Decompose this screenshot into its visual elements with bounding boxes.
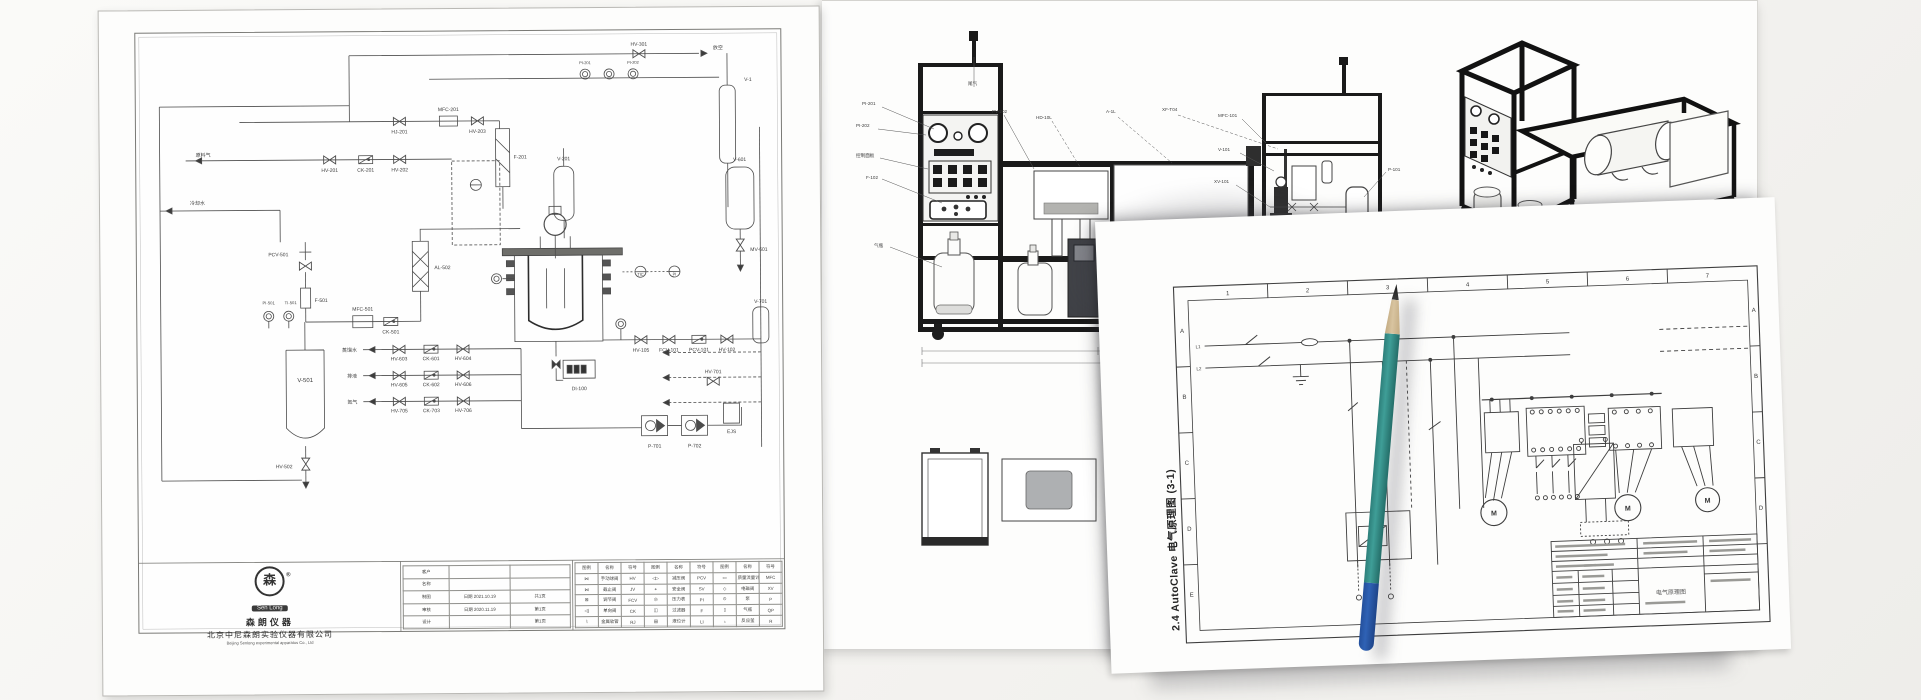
- drawing-label: 2: [1306, 288, 1310, 294]
- legend-header-cell: 符号: [759, 561, 782, 572]
- drawing-label: AL-502: [434, 265, 450, 271]
- drawing-label: HV-203: [469, 129, 486, 135]
- drawing-label: PI-201: [579, 60, 592, 65]
- drawing-label: FCV-101: [659, 347, 679, 353]
- drawing-label: HD-10L: [1036, 115, 1052, 120]
- drawing-label: V-601: [733, 157, 746, 163]
- drawing-label: HV-603: [391, 356, 408, 362]
- electrical-labels: 1234567ABCDEABCDL1L2MMM电气原理图: [1178, 272, 1766, 614]
- electrical-sheet: 1234567ABCDEABCDL1L2MMM电气原理图 2.4 AutoCla…: [1095, 197, 1791, 674]
- photo-canvas: HV-301放空V-1PI-201PI-202原料气HJ-201MFC-201H…: [0, 0, 1921, 700]
- drawing-label: 4: [1466, 282, 1470, 288]
- title-info-cell: [510, 565, 570, 578]
- title-info-cell: 共1页: [510, 590, 570, 603]
- title-info-table: 客户名称制图日期 2021.10.19共1页审核日期 2020.11.19第1页…: [402, 564, 570, 629]
- drawing-label: HV-102: [719, 347, 736, 353]
- drawing-label: 尾气: [968, 80, 978, 87]
- drawing-label: DI-100: [572, 386, 587, 392]
- title-info-cell: [449, 565, 509, 578]
- drawing-label: M: [1625, 506, 1631, 513]
- title-info-cell: [449, 578, 509, 591]
- drawing-label: 排液: [347, 373, 357, 380]
- drawing-label: F-102: [866, 175, 878, 180]
- drawing-label: 1: [1226, 291, 1230, 297]
- drawing-label: PCV-501: [268, 252, 288, 258]
- brand-cn: 森朗仪器: [143, 614, 397, 629]
- legend-cell: FCV: [621, 595, 644, 606]
- title-info-cell: 客户: [403, 566, 449, 579]
- electrical-drawing: 1234567ABCDEABCDL1L2MMM电气原理图: [1095, 197, 1791, 674]
- title-info-cell: 第1页: [510, 603, 570, 616]
- drawing-label: HV-202: [391, 167, 408, 173]
- legend-cell: ⋈: [575, 573, 598, 584]
- legend-cell: PCV: [690, 573, 713, 584]
- legend-cell: ◇: [713, 583, 736, 594]
- legend-cell: 反应釜: [736, 616, 759, 627]
- pid-sheet: HV-301放空V-1PI-201PI-202原料气HJ-201MFC-201H…: [98, 5, 825, 696]
- title-info-cell: 设计: [403, 616, 449, 629]
- drawing-label: A-1L: [1106, 109, 1116, 114]
- legend-cell: XV: [759, 583, 782, 594]
- legend-cell: ▤: [644, 616, 667, 627]
- drawing-label: P-702: [688, 443, 702, 449]
- drawing-label: HV-301: [631, 42, 648, 48]
- legend-cell: ▭: [713, 572, 736, 583]
- legend-cell: 金属软管: [598, 617, 621, 628]
- drawing-label: A: [1752, 308, 1756, 314]
- drawing-label: 5: [1546, 279, 1550, 285]
- drawing-label: HJ-201: [391, 129, 407, 135]
- legend-table: 图例名称符号图例名称符号图例名称符号⋈手动球阀HV◁▷减压阀PCV▭质量流量计M…: [574, 561, 782, 628]
- legend-cell: ♁: [713, 616, 736, 627]
- drawing-label: HV-201: [321, 168, 338, 174]
- legend-cell: P: [759, 594, 782, 605]
- drawing-label: 原料气: [196, 152, 211, 159]
- legend-cell: 泵: [736, 594, 759, 605]
- senlong-logo-icon: 森®: [254, 566, 284, 596]
- drawing-label: 控制面板: [856, 152, 875, 159]
- legend-cell: RJ: [621, 616, 644, 627]
- drawing-label: PCV-101: [689, 347, 709, 353]
- drawing-label: CK-703: [423, 408, 440, 414]
- drawing-label: V-1: [744, 77, 752, 83]
- drawing-label: HV-605: [391, 382, 408, 388]
- drawing-label: MFC-201: [438, 107, 459, 113]
- drawing-label: L1: [1196, 344, 1202, 349]
- drawing-label: V-701: [754, 299, 767, 305]
- drawing-label: 氮气: [347, 399, 357, 406]
- drawing-label: CK-201: [357, 168, 374, 174]
- drawing-label: HV-706: [455, 408, 472, 414]
- drawing-label: MV-601: [750, 247, 767, 253]
- drawing-label: PI-501: [262, 300, 275, 305]
- legend-cell: LI: [690, 616, 713, 627]
- titleblock-text-bars: [1555, 538, 1753, 613]
- drawing-label: 冷却水: [190, 200, 205, 207]
- drawing-label: B: [1754, 374, 1758, 380]
- legend-header-cell: 名称: [598, 562, 621, 573]
- drawing-label: MFC-501: [352, 307, 373, 313]
- drawing-label: CK-602: [423, 382, 440, 388]
- legend-header-cell: 名称: [736, 561, 759, 572]
- drawing-label: F-501: [315, 298, 328, 304]
- legend-cell: SV: [690, 583, 713, 594]
- legend-header-cell: 名称: [667, 562, 690, 573]
- drawing-label: XF-T04: [1162, 107, 1178, 112]
- drawing-label: C: [1756, 440, 1761, 446]
- title-block-info: 客户名称制图日期 2021.10.19共1页审核日期 2020.11.19第1页…: [402, 564, 570, 629]
- title-info-cell: [450, 616, 510, 629]
- drawing-label: 6: [1626, 276, 1630, 282]
- drawing-label: L2: [1196, 366, 1202, 371]
- drawing-label: HV-502: [276, 464, 293, 470]
- legend-cell: F: [690, 605, 713, 616]
- legend-cell: 压力表: [667, 594, 690, 605]
- drawing-label: C: [1185, 461, 1190, 467]
- legend-cell: CK: [621, 606, 644, 617]
- legend-cell: MFC: [759, 572, 782, 583]
- drawing-label: TIC: [637, 272, 644, 277]
- legend-cell: R: [759, 615, 782, 626]
- legend-cell: ⌖: [644, 584, 667, 595]
- drawing-label: CK-601: [423, 356, 440, 362]
- legend-cell: 手动球阀: [598, 573, 621, 584]
- drawing-label: F-201: [514, 155, 527, 161]
- drawing-label: B: [1182, 395, 1186, 401]
- drawing-label: PI-202: [856, 123, 870, 128]
- title-info-cell: [510, 577, 570, 590]
- legend-cell: 单向阀: [598, 606, 621, 617]
- drawing-label: PV-202: [992, 109, 1008, 114]
- drawing-label: PI: [673, 271, 677, 276]
- drawing-label: E: [1190, 593, 1194, 599]
- drawing-label: PI-202: [627, 60, 640, 65]
- title-info-cell: 名称: [403, 578, 449, 591]
- drawing-label: 气瓶: [874, 242, 884, 249]
- drawing-label: P-701: [648, 444, 662, 450]
- legend-cell: ◁|: [575, 606, 598, 617]
- drawing-label: 7: [1706, 274, 1710, 280]
- drawing-label: HV-701: [705, 369, 722, 375]
- legend-cell: 液位计: [667, 616, 690, 627]
- drawing-label: M: [1705, 498, 1711, 505]
- drawing-label: PI-201: [862, 101, 876, 106]
- drawing-label: 放空: [713, 44, 723, 51]
- drawing-label: D: [1759, 506, 1764, 512]
- legend-header-cell: 图例: [713, 562, 736, 573]
- title-block-logo: 森® Sen Long 森朗仪器 北京中尼森朗实验仪器有限公司 Beijing …: [143, 565, 397, 629]
- brand-en: Sen Long: [252, 605, 288, 611]
- drawing-label: A: [1180, 329, 1184, 335]
- legend-header-cell: 符号: [690, 562, 713, 573]
- legend-header-cell: 图例: [575, 563, 598, 574]
- drawing-label: HV-604: [455, 356, 472, 362]
- drawing-label: EJS: [727, 429, 737, 435]
- legend-cell: 过滤器: [667, 605, 690, 616]
- legend-table-wrap: 图例名称符号图例名称符号图例名称符号⋈手动球阀HV◁▷减压阀PCV▭质量流量计M…: [574, 561, 782, 628]
- drawing-label: CK-501: [382, 329, 399, 335]
- legend-cell: ⊙: [713, 594, 736, 605]
- pencil-tip: [1388, 283, 1404, 300]
- drawing-label: HV-105: [633, 348, 650, 354]
- legend-cell: 减压阀: [667, 573, 690, 584]
- title-info-cell: 日期 2020.11.19: [450, 603, 510, 616]
- legend-cell: ◁▷: [644, 573, 667, 584]
- legend-cell: PI: [690, 594, 713, 605]
- drawing-label: TI-501: [285, 300, 298, 305]
- title-info-cell: 审核: [403, 603, 449, 616]
- drawing-label: V-501: [297, 378, 313, 384]
- title-info-cell: 第1页: [510, 615, 570, 628]
- drawing-label: P-101: [1388, 167, 1401, 172]
- legend-cell: 质量流量计: [736, 572, 759, 583]
- legend-cell: 气瓶: [736, 605, 759, 616]
- legend-cell: 电磁阀: [736, 583, 759, 594]
- legend-cell: 调节阀: [598, 595, 621, 606]
- drawing-label: V-201: [557, 156, 570, 162]
- pencil-wood: [1385, 299, 1403, 334]
- legend-cell: ⋈: [575, 584, 598, 595]
- legend-header-cell: 图例: [644, 562, 667, 573]
- drawing-label: 电气原理图: [1656, 588, 1686, 597]
- drawing-label: HV-705: [391, 408, 408, 414]
- title-info-cell: 制图: [403, 591, 449, 604]
- legend-cell: ◫: [644, 605, 667, 616]
- legend-cell: ▯: [713, 605, 736, 616]
- drawing-label: V-101: [1218, 147, 1230, 152]
- legend-cell: QP: [759, 605, 782, 616]
- legend-cell: ⊠: [575, 595, 598, 606]
- title-info-cell: 日期 2021.10.19: [450, 590, 510, 603]
- legend-cell: HV: [621, 573, 644, 584]
- drawing-label: HV-606: [455, 382, 472, 388]
- legend-cell: 安全阀: [667, 584, 690, 595]
- enclosure-boxes: [922, 448, 1096, 545]
- legend-cell: 截止阀: [598, 584, 621, 595]
- drawing-label: D: [1187, 527, 1192, 533]
- drawing-label: 蒸馏水: [342, 347, 357, 354]
- legend-cell: JV: [621, 584, 644, 595]
- legend-header-cell: 符号: [621, 562, 644, 573]
- legend-cell: ◎: [644, 595, 667, 606]
- drawing-label: MFC-101: [1218, 113, 1238, 118]
- drawing-label: M: [1491, 510, 1497, 517]
- legend-cell: ⌇: [575, 617, 598, 628]
